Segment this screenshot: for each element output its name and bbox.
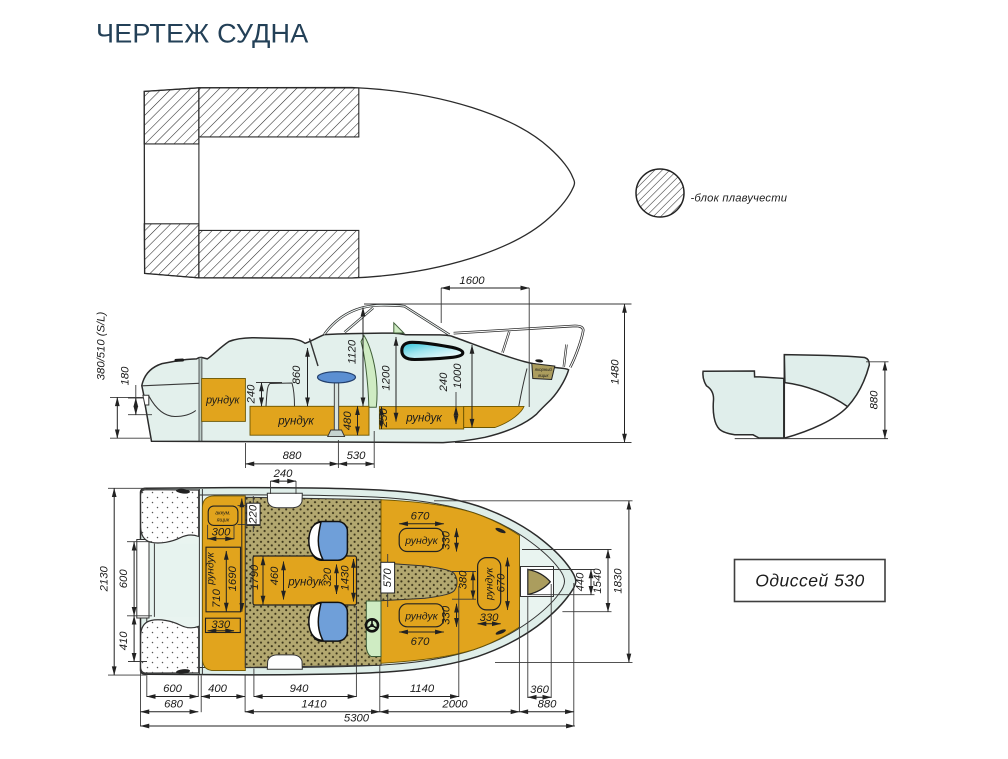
svg-text:600: 600 (163, 683, 183, 695)
svg-text:880: 880 (538, 699, 558, 711)
svg-text:300: 300 (212, 527, 232, 539)
svg-text:1690: 1690 (227, 566, 239, 592)
svg-text:рундук: рундук (405, 413, 442, 425)
svg-text:330: 330 (441, 605, 453, 625)
svg-text:250: 250 (378, 408, 390, 429)
svg-text:рундук: рундук (404, 610, 438, 622)
svg-text:1120: 1120 (347, 339, 359, 364)
svg-text:1140: 1140 (410, 683, 435, 695)
svg-text:1540: 1540 (592, 568, 604, 594)
svg-text:1600: 1600 (459, 275, 485, 287)
svg-text:рундук: рундук (287, 577, 324, 589)
svg-text:330: 330 (480, 612, 500, 624)
svg-text:570: 570 (382, 568, 394, 588)
svg-text:360: 360 (530, 684, 550, 696)
svg-text:460: 460 (269, 566, 281, 586)
svg-text:1430: 1430 (340, 565, 352, 591)
svg-text:670: 670 (411, 636, 431, 648)
svg-text:рундук: рундук (277, 416, 314, 428)
svg-text:880: 880 (283, 450, 303, 462)
svg-text:2130: 2130 (99, 566, 111, 593)
svg-text:400: 400 (208, 683, 228, 695)
svg-text:330: 330 (441, 530, 453, 550)
svg-text:530: 530 (347, 450, 367, 462)
svg-text:680: 680 (164, 699, 184, 711)
svg-text:-блок плавучести: -блок плавучести (691, 193, 788, 205)
svg-text:180: 180 (120, 366, 132, 386)
svg-text:940: 940 (290, 683, 310, 695)
svg-text:1480: 1480 (610, 359, 622, 385)
svg-text:5300: 5300 (344, 713, 370, 725)
svg-text:ЧЕРТЕЖ СУДНА: ЧЕРТЕЖ СУДНА (96, 19, 308, 49)
svg-text:рундук: рундук (205, 551, 217, 585)
svg-text:Одиссей 530: Одиссей 530 (755, 571, 865, 591)
svg-text:240: 240 (246, 384, 258, 405)
svg-text:320: 320 (322, 567, 334, 587)
svg-text:якорный: якорный (534, 367, 553, 372)
svg-text:1830: 1830 (613, 568, 625, 594)
svg-text:ящик: ящик (216, 517, 230, 523)
svg-text:600: 600 (118, 569, 130, 589)
svg-text:аккум.: аккум. (215, 510, 230, 516)
svg-text:670: 670 (411, 511, 431, 523)
svg-text:410: 410 (118, 631, 130, 651)
svg-text:1790: 1790 (249, 564, 261, 590)
svg-text:670: 670 (496, 573, 508, 593)
svg-text:880: 880 (869, 390, 881, 410)
svg-text:380/510 (S/L): 380/510 (S/L) (96, 312, 108, 381)
svg-text:240: 240 (438, 372, 450, 393)
svg-text:330: 330 (211, 619, 231, 631)
svg-text:220: 220 (248, 504, 260, 525)
svg-text:1200: 1200 (381, 365, 393, 391)
svg-text:480: 480 (342, 411, 354, 431)
svg-text:ящик: ящик (537, 373, 549, 378)
svg-text:2000: 2000 (441, 699, 468, 711)
svg-text:1410: 1410 (301, 699, 327, 711)
svg-text:рундук: рундук (404, 535, 438, 547)
svg-text:рундук: рундук (484, 567, 496, 601)
svg-text:440: 440 (575, 572, 587, 592)
svg-text:рундук: рундук (205, 395, 240, 407)
svg-text:860: 860 (291, 365, 303, 385)
svg-text:380: 380 (458, 570, 470, 590)
svg-text:240: 240 (273, 468, 294, 480)
svg-text:1000: 1000 (452, 363, 464, 389)
svg-text:710: 710 (211, 588, 223, 608)
